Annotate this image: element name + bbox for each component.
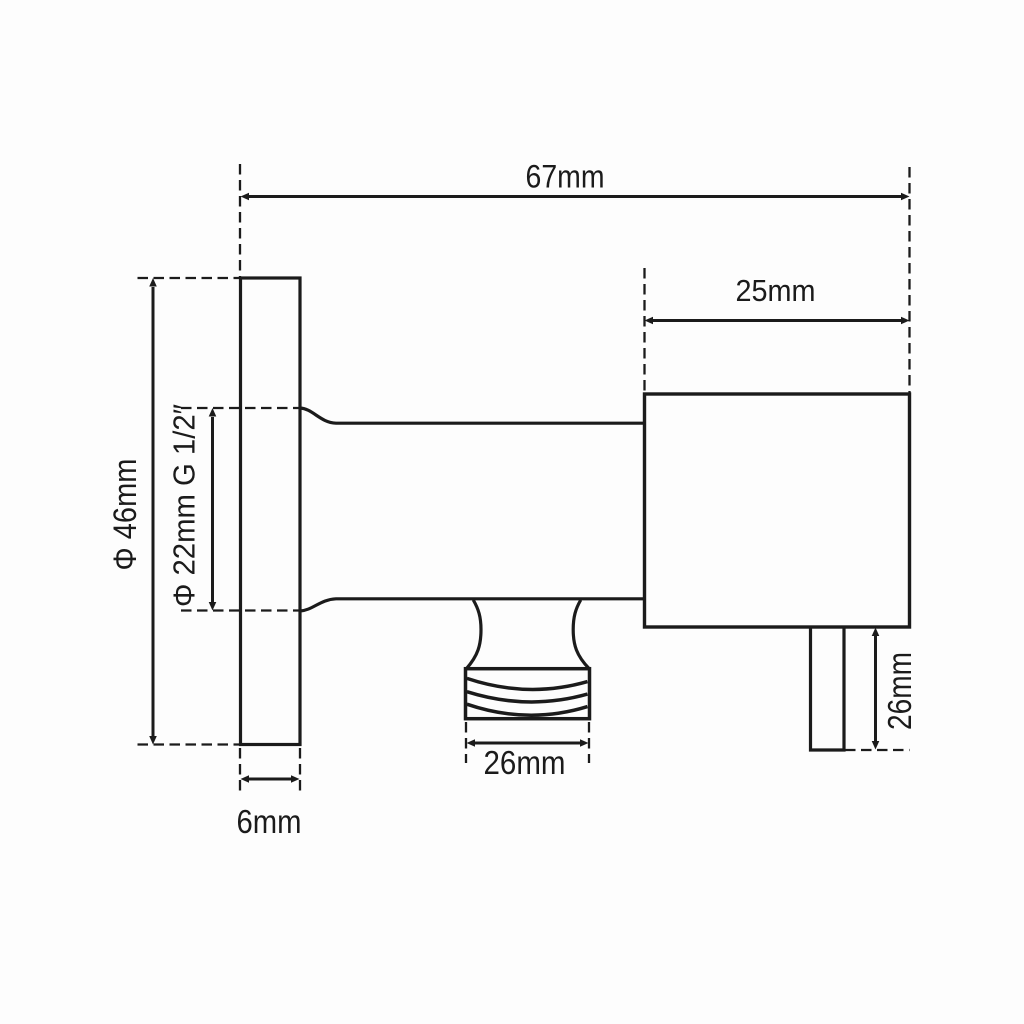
svg-text:26mm: 26mm xyxy=(484,744,566,781)
svg-text:6mm: 6mm xyxy=(237,803,302,840)
svg-text:67mm: 67mm xyxy=(526,159,605,195)
svg-text:25mm: 25mm xyxy=(736,273,816,308)
svg-text:Φ 22mm G 1/2″: Φ 22mm G 1/2″ xyxy=(167,404,202,607)
svg-text:26mm: 26mm xyxy=(881,652,918,730)
svg-text:Φ 46mm: Φ 46mm xyxy=(107,459,143,571)
